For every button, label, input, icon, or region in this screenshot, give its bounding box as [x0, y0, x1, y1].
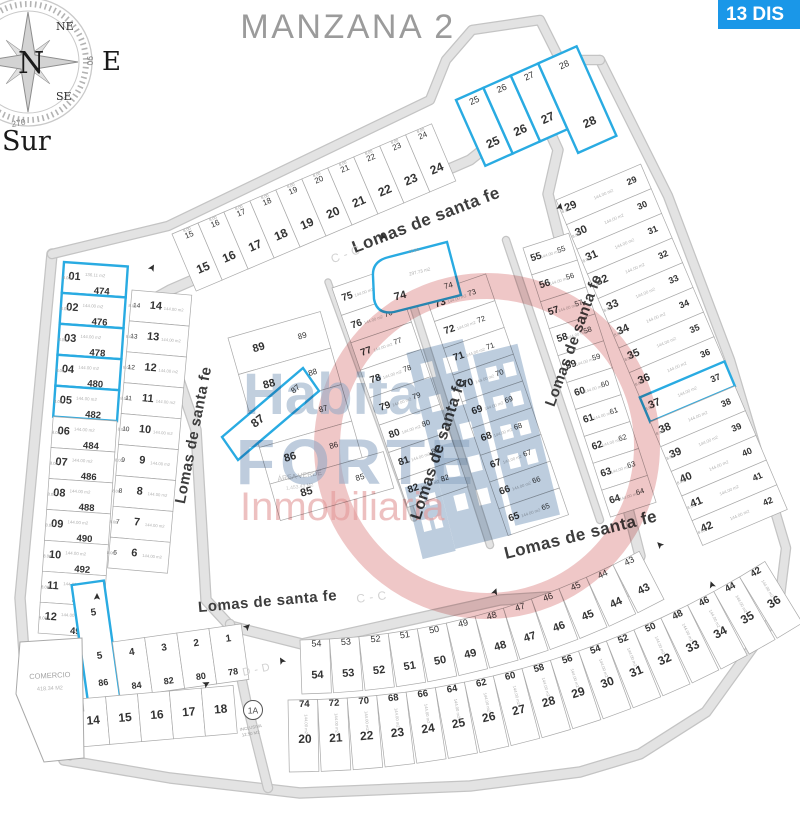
availability-badge-label: 13 DIS [726, 4, 784, 25]
compass-ne-label: NE [56, 20, 74, 33]
comercio: COMERCIO418.34 M2 [16, 638, 84, 762]
map-label: 18 [213, 701, 228, 716]
map-label: 8.00 [47, 491, 56, 497]
corner-marker-icon [491, 587, 499, 595]
map-label: 8.00 [109, 519, 118, 525]
corner-marker-icon [708, 580, 716, 588]
map-label: 66 [417, 688, 429, 700]
map-label: 11 [141, 392, 154, 405]
map-label: 84 [131, 680, 142, 691]
availability-badge: 13 DIS [718, 0, 800, 29]
map-label: 16 [150, 707, 165, 722]
map-label: 8.00 [58, 337, 67, 343]
map-label: 8.00 [123, 365, 132, 371]
map-label: 74 [299, 699, 310, 710]
page-title: MANZANA 2 [226, 8, 470, 47]
map-label: 14 [149, 300, 163, 313]
compass-sur-label: Sur [2, 126, 51, 157]
map-label: 54 [311, 638, 321, 648]
street-label: C - C [329, 242, 362, 266]
corner-marker-icon [655, 540, 664, 549]
map-label: 52 [370, 633, 381, 644]
map-label: 8.00 [112, 488, 121, 494]
compass-rose: N NE SE E Sur 270 90 [0, 0, 160, 175]
map-label: 72 [329, 698, 340, 710]
map-label: 7 [133, 516, 140, 528]
map-label: 8.00 [60, 306, 69, 312]
compass-n-label: N [18, 46, 44, 81]
compass-90-label: 90 [85, 56, 95, 66]
map-label: 144.00 m2 [334, 713, 340, 734]
map-label: 8.00 [107, 550, 116, 556]
compass-se-label: SE [56, 90, 72, 103]
map-label: 8.00 [118, 426, 127, 432]
map-label: 8.00 [41, 584, 50, 590]
map-label: 15 [118, 710, 133, 725]
map-label: 8.00 [63, 275, 72, 281]
map-label: 8.00 [56, 368, 65, 374]
map-label: 70 [358, 695, 369, 707]
map-label: 8.00 [54, 399, 63, 405]
compass-e-label: E [102, 47, 121, 77]
map-label: 51 [399, 629, 410, 640]
corner-marker-icon [148, 263, 157, 272]
map-label: 8.00 [39, 615, 48, 621]
map-label: 82 [163, 675, 174, 686]
map-label: 9 [139, 454, 146, 466]
map-label: 14 [86, 713, 101, 728]
map-label: 13 [147, 331, 160, 344]
map-label: 78 [227, 666, 238, 677]
map-label: 8.00 [43, 553, 52, 559]
map-label: 8.00 [126, 334, 135, 340]
map-label: 12 [144, 361, 157, 374]
corner-marker-icon [277, 656, 286, 665]
street-label: Lomas de santa fe [197, 587, 337, 616]
map-label: 50 [428, 624, 440, 636]
map-label: 10 [138, 423, 151, 436]
map-label: 52 [372, 664, 386, 677]
map-label: 8.00 [128, 303, 137, 309]
map-label: 53 [341, 636, 352, 647]
map-label: 17 [182, 704, 197, 719]
street-label: C - C [356, 588, 388, 606]
map-label: 8 [136, 485, 143, 497]
map-label: 144.00 m2 [304, 714, 309, 735]
map-label: 50 [433, 654, 447, 668]
map-label: 8.00 [45, 522, 54, 528]
map-label: 1A [248, 706, 259, 716]
map-label: 68 [387, 692, 399, 704]
map-label: 8.00 [120, 395, 129, 401]
map-label: 80 [195, 671, 206, 682]
map-label: 6 [131, 547, 138, 559]
map-label: 53 [342, 667, 355, 680]
map-label: 8.00 [52, 430, 61, 436]
map-label: 8.00 [50, 461, 59, 467]
map-label: 86 [98, 677, 109, 688]
map-label: 51 [403, 659, 417, 673]
map-label: 54 [311, 669, 325, 681]
parcel [16, 638, 84, 762]
map-label: 8.00 [115, 457, 124, 463]
